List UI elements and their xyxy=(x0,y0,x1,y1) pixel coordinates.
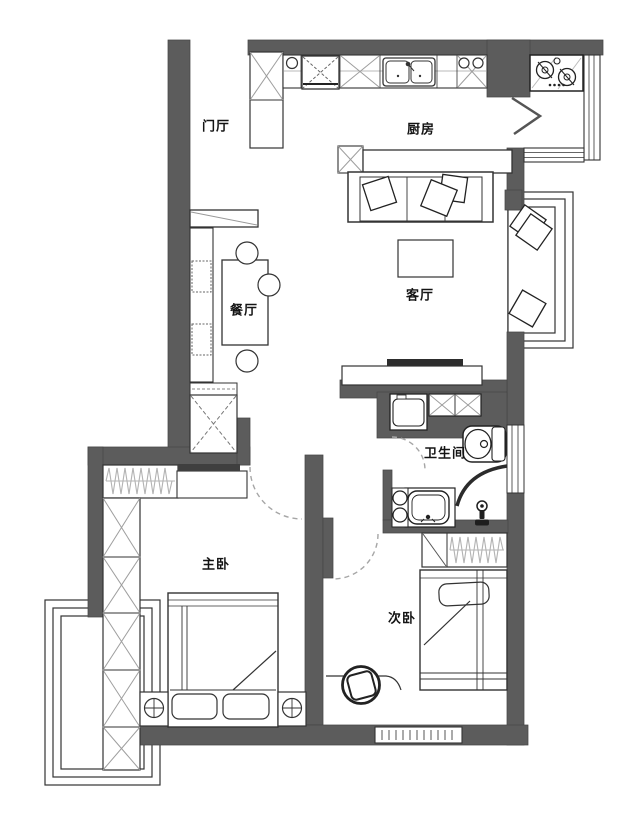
fridge-icon xyxy=(302,56,339,89)
side-table-icon xyxy=(338,146,363,173)
room-label-kitchen: 厨房 xyxy=(407,119,435,138)
second-wardrobe-icon xyxy=(422,533,507,567)
folding-door-icon xyxy=(512,98,540,134)
dresser-icon xyxy=(177,464,247,498)
room-label-living-room: 客厅 xyxy=(406,285,434,304)
room-label-dining-room: 餐厅 xyxy=(230,300,258,319)
cooktop-icon xyxy=(530,55,583,91)
room-label-second-bedroom: 次卧 xyxy=(388,608,416,627)
bathroom-window-icon xyxy=(507,425,524,493)
toilet-icon xyxy=(463,426,506,462)
floor-plan: 门厅 厨房 客厅 餐厅 卫生间 主卧 次卧 xyxy=(0,0,640,822)
sofa-console-icon xyxy=(363,150,512,173)
kitchen-sink-icon xyxy=(383,58,435,86)
room-label-bathroom: 卫生间 xyxy=(424,443,466,462)
sideboard-icon xyxy=(190,210,258,227)
sofa-icon xyxy=(348,172,493,222)
room-label-entry: 门厅 xyxy=(202,116,230,135)
hall-storage-cabinet-icon xyxy=(190,383,237,453)
floor-plan-drawing xyxy=(0,0,640,822)
tv-stand-icon xyxy=(342,366,482,385)
washbasin-icon xyxy=(405,488,455,527)
washing-machine-icon xyxy=(390,394,427,430)
second-bedroom-window-icon xyxy=(375,727,462,743)
dining-bench-icon xyxy=(190,228,213,382)
room-label-master-bedroom: 主卧 xyxy=(202,554,230,573)
tv-icon xyxy=(387,359,463,366)
chair-icon xyxy=(343,667,380,704)
laundry-bins-icon xyxy=(392,488,408,527)
bathroom-cabinet-icon xyxy=(429,394,481,416)
second-bed-icon xyxy=(420,570,507,690)
shower-icon xyxy=(457,466,507,526)
kitchen-tall-cabinet-icon xyxy=(250,52,283,148)
master-bed-icon xyxy=(168,593,278,727)
coffee-table-icon xyxy=(398,240,453,277)
